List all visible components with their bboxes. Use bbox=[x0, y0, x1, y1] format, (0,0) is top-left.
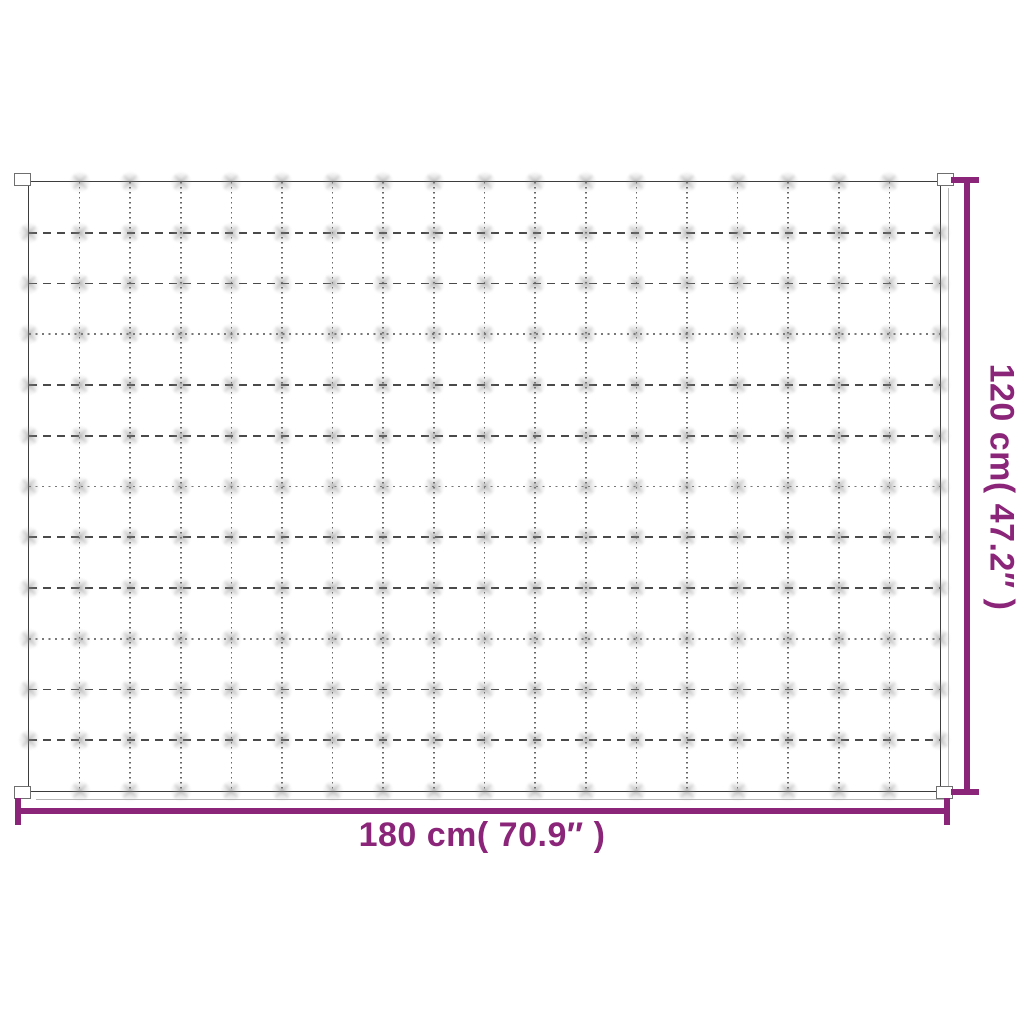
stitch-line-horizontal bbox=[29, 333, 940, 335]
stitch-line-horizontal bbox=[29, 435, 940, 437]
height-dimension-label: 120 cm( 47.2″ ) bbox=[982, 364, 1021, 611]
stitch-line-horizontal bbox=[29, 638, 940, 640]
height-dimension-cap-top bbox=[951, 177, 979, 183]
corner-tab-top-left bbox=[14, 173, 31, 186]
blanket bbox=[28, 181, 941, 792]
height-dimension-cap-bottom bbox=[951, 789, 979, 795]
stitch-line-horizontal bbox=[29, 536, 940, 538]
width-dimension-cap-left bbox=[15, 798, 21, 825]
height-dimension-line bbox=[964, 180, 970, 792]
stitch-line-horizontal bbox=[29, 283, 940, 285]
stitch-line-horizontal bbox=[29, 232, 940, 234]
width-dimension-line bbox=[18, 808, 947, 814]
stitch-line-horizontal bbox=[29, 486, 940, 488]
width-dimension-cap-right bbox=[944, 798, 950, 825]
stitch-line-horizontal bbox=[29, 384, 940, 386]
width-dimension-label: 180 cm( 70.9″ ) bbox=[359, 816, 606, 855]
stitch-line-horizontal bbox=[29, 689, 940, 691]
product-diagram: 180 cm( 70.9″ ) 120 cm( 47.2″ ) bbox=[0, 0, 1024, 1024]
stitch-line-horizontal bbox=[29, 587, 940, 589]
stitch-line-horizontal bbox=[29, 739, 940, 741]
